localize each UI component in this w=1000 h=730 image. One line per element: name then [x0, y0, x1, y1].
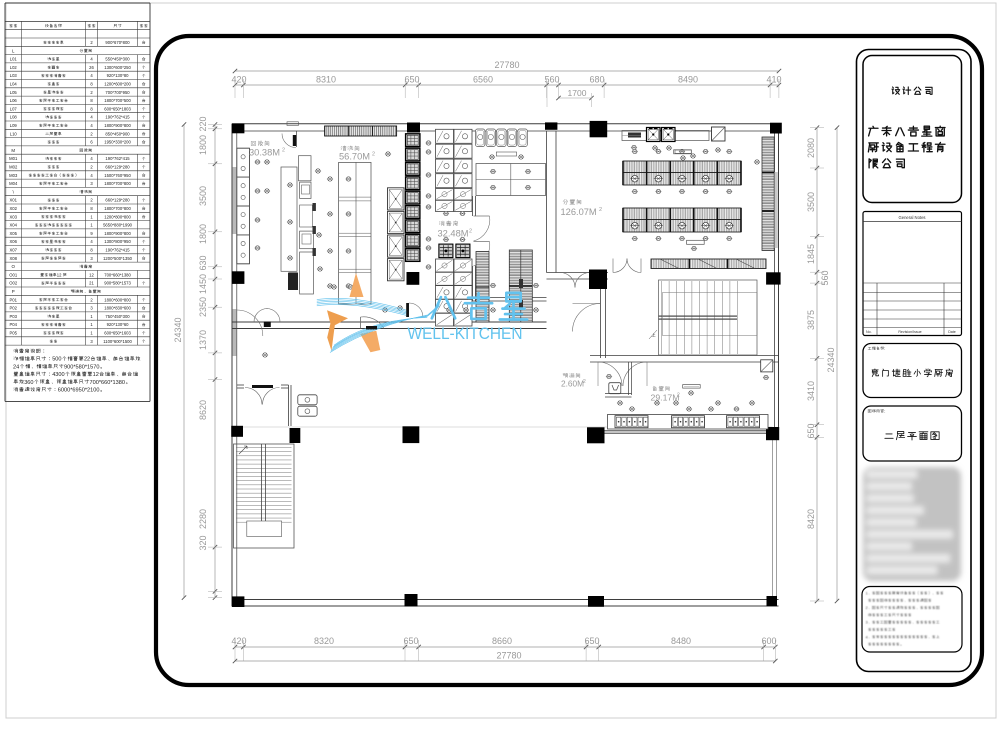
svg-text:M02: M02 — [9, 165, 18, 170]
svg-text:320: 320 — [198, 535, 208, 550]
svg-text:P01: P01 — [10, 297, 18, 302]
svg-text:190*762*415: 190*762*415 — [105, 248, 130, 253]
svg-text:220: 220 — [198, 116, 208, 131]
svg-text:L09: L09 — [10, 123, 18, 128]
svg-text:26: 26 — [89, 65, 94, 70]
svg-text:2280: 2280 — [198, 509, 208, 529]
svg-text:2: 2 — [677, 393, 680, 399]
svg-text:900*580*1573: 900*580*1573 — [104, 281, 131, 286]
svg-text:P: P — [12, 289, 15, 294]
svg-text:O: O — [12, 264, 16, 269]
svg-text:920*130*60: 920*130*60 — [107, 322, 130, 327]
svg-text:24340: 24340 — [173, 317, 183, 342]
svg-text:P05: P05 — [10, 331, 18, 336]
svg-text:3410: 3410 — [806, 381, 816, 401]
svg-text:27780: 27780 — [496, 651, 521, 661]
svg-text:1800*900*800: 1800*900*800 — [104, 231, 131, 236]
svg-text:L01: L01 — [10, 57, 18, 62]
svg-text:660*129*280: 660*129*280 — [105, 165, 130, 170]
svg-text:410: 410 — [766, 74, 781, 84]
svg-text:Revision/Issue: Revision/Issue — [898, 330, 921, 334]
svg-text:X02: X02 — [10, 206, 18, 211]
svg-text:Date: Date — [948, 330, 956, 334]
svg-text:6560: 6560 — [473, 74, 493, 84]
svg-text:3500: 3500 — [806, 192, 816, 212]
svg-text:2: 2 — [282, 148, 285, 154]
svg-text:600*650*1603: 600*650*1603 — [104, 331, 131, 336]
svg-text:660*129*280: 660*129*280 — [105, 198, 130, 203]
svg-text:L10: L10 — [10, 131, 18, 136]
svg-text:1370: 1370 — [198, 330, 208, 350]
svg-text:360: 360 — [24, 380, 33, 386]
svg-text:24340: 24340 — [826, 347, 836, 372]
svg-text:General Notes: General Notes — [899, 215, 926, 220]
svg-text:WELL-KITCHEN: WELL-KITCHEN — [408, 325, 523, 343]
svg-text:750*450*300: 750*450*300 — [105, 314, 130, 319]
svg-text:2: 2 — [469, 229, 472, 235]
svg-text:O01: O01 — [9, 272, 18, 277]
svg-text:L06: L06 — [10, 98, 18, 103]
svg-text:1100*600*1500: 1100*600*1500 — [103, 339, 132, 344]
svg-text:8620: 8620 — [198, 400, 208, 420]
svg-text:1800: 1800 — [198, 224, 208, 244]
svg-text:3500: 3500 — [198, 186, 208, 206]
svg-text:1200*500*1350: 1200*500*1350 — [103, 256, 133, 261]
svg-text:1300*600*250: 1300*600*250 — [104, 65, 131, 70]
svg-text:190*762*415: 190*762*415 — [105, 115, 130, 120]
svg-text:32.48M: 32.48M — [438, 229, 469, 239]
svg-text:1845: 1845 — [806, 244, 816, 264]
svg-text:500: 500 — [52, 357, 61, 363]
svg-text:X03: X03 — [10, 214, 18, 219]
svg-text:1450: 1450 — [198, 274, 208, 294]
svg-text:1800*700*500: 1800*700*500 — [104, 98, 131, 103]
svg-text:630: 630 — [198, 255, 208, 270]
svg-text:920*130*80: 920*130*80 — [107, 73, 130, 78]
svg-text:600: 600 — [761, 636, 776, 646]
svg-text:2350: 2350 — [198, 297, 208, 317]
svg-text:X08: X08 — [10, 256, 18, 261]
svg-text:420: 420 — [231, 74, 246, 84]
svg-text:27780: 27780 — [494, 60, 519, 70]
svg-text:1200*600*200: 1200*600*200 — [104, 82, 131, 87]
svg-text:1950*330*200: 1950*330*200 — [104, 140, 131, 145]
svg-text:L03: L03 — [10, 73, 18, 78]
svg-text:X05: X05 — [10, 231, 18, 236]
svg-text:900*580*1570: 900*580*1570 — [64, 364, 99, 370]
svg-text:M: M — [11, 148, 15, 153]
svg-text:650: 650 — [584, 636, 599, 646]
svg-text:1200*800*800: 1200*800*800 — [104, 214, 131, 219]
svg-text:X01: X01 — [10, 198, 18, 203]
svg-text:21: 21 — [89, 281, 94, 286]
svg-text:6000*6950*2100: 6000*6950*2100 — [58, 388, 100, 394]
svg-text:650: 650 — [403, 636, 418, 646]
svg-text:700*660*1380: 700*660*1380 — [104, 272, 131, 277]
svg-text:L08: L08 — [10, 115, 18, 120]
svg-text:5650*880*1990: 5650*880*1990 — [103, 223, 133, 228]
svg-text:1800*900*800: 1800*900*800 — [104, 123, 131, 128]
svg-text:56.70M: 56.70M — [339, 152, 370, 162]
svg-text:1800*700*800: 1800*700*800 — [104, 181, 131, 186]
svg-text:3875: 3875 — [806, 310, 816, 330]
svg-text:700*700*950: 700*700*950 — [105, 90, 130, 95]
svg-text:600*650*1803: 600*650*1803 — [104, 106, 131, 111]
svg-text:2: 2 — [599, 207, 602, 213]
svg-text:1500*760*950: 1500*760*950 — [104, 173, 131, 178]
svg-text:L04: L04 — [10, 82, 18, 87]
svg-text:L02: L02 — [10, 65, 18, 70]
svg-text:P02: P02 — [10, 306, 18, 311]
svg-text:8320: 8320 — [314, 636, 334, 646]
svg-text:L05: L05 — [10, 90, 18, 95]
svg-text:680: 680 — [589, 74, 604, 84]
svg-text:M01: M01 — [9, 156, 18, 161]
svg-text:22: 22 — [84, 357, 90, 363]
svg-text:X04: X04 — [10, 223, 18, 228]
svg-text:X06: X06 — [10, 239, 18, 244]
svg-text:8480: 8480 — [671, 636, 691, 646]
svg-text:1800*600*800: 1800*600*800 — [104, 297, 131, 302]
svg-text:560: 560 — [544, 74, 559, 84]
svg-text:2: 2 — [372, 152, 375, 158]
svg-text:M04: M04 — [9, 181, 18, 186]
svg-text:12: 12 — [93, 372, 99, 378]
svg-text:1800: 1800 — [198, 135, 208, 155]
svg-text:P04: P04 — [10, 322, 18, 327]
svg-text:8660: 8660 — [492, 636, 512, 646]
svg-text:2.60M: 2.60M — [561, 379, 584, 389]
svg-text:24: 24 — [13, 364, 19, 370]
svg-text:900*670*800: 900*670*800 — [105, 40, 130, 45]
svg-text:12: 12 — [89, 272, 94, 277]
svg-text:O02: O02 — [9, 281, 18, 286]
svg-text:550*450*300: 550*450*300 — [105, 57, 130, 62]
svg-text:No.: No. — [866, 330, 872, 334]
svg-text::: : — [884, 409, 885, 414]
svg-text:650: 650 — [404, 74, 419, 84]
svg-text:X07: X07 — [10, 248, 18, 253]
svg-text:M03: M03 — [9, 173, 18, 178]
svg-text:1800*830*600: 1800*830*600 — [104, 306, 131, 311]
svg-text:1800*700*800: 1800*700*800 — [104, 206, 131, 211]
svg-text:700*660*1380: 700*660*1380 — [90, 380, 125, 386]
svg-text:L07: L07 — [10, 106, 18, 111]
svg-text:1700: 1700 — [568, 88, 587, 98]
svg-text:1300*800*950: 1300*800*950 — [104, 239, 131, 244]
svg-text:30.38M: 30.38M — [249, 148, 280, 158]
svg-text:420: 420 — [231, 636, 246, 646]
svg-text::: : — [884, 346, 885, 351]
svg-text:8490: 8490 — [678, 74, 698, 84]
svg-text:4300: 4300 — [52, 372, 64, 378]
svg-text:P03: P03 — [10, 314, 18, 319]
svg-text:2: 2 — [583, 379, 586, 385]
svg-text:560: 560 — [820, 270, 830, 285]
svg-text:2080: 2080 — [806, 138, 816, 158]
svg-text:8310: 8310 — [316, 74, 336, 84]
svg-text:850*450*900: 850*450*900 — [105, 131, 130, 136]
svg-text:8420: 8420 — [806, 509, 816, 529]
svg-text:126.07M: 126.07M — [561, 207, 597, 217]
svg-text:190*762*415: 190*762*415 — [105, 156, 130, 161]
svg-text:650: 650 — [806, 423, 816, 438]
svg-text:12: 12 — [57, 272, 62, 277]
